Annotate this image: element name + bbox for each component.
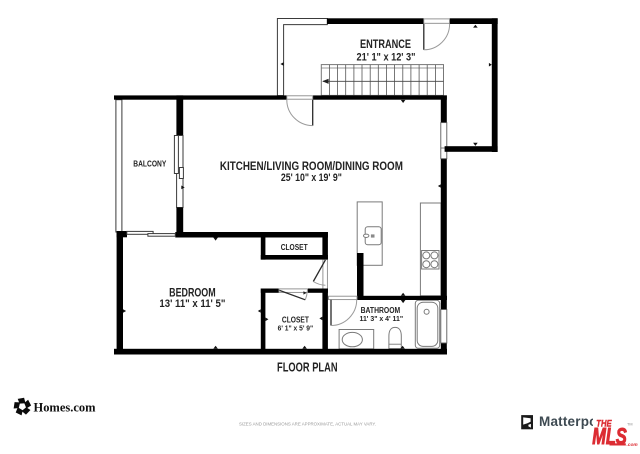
svg-text:FLOOR PLAN: FLOOR PLAN	[277, 359, 338, 374]
svg-text:Homes.com: Homes.com	[34, 400, 96, 415]
svg-text:SIZES AND DIMENSIONS ARE APPRO: SIZES AND DIMENSIONS ARE APPROXIMATE, AC…	[239, 421, 376, 426]
svg-text:13' 11" x 11' 5": 13' 11" x 11' 5"	[159, 298, 225, 310]
svg-text:11' 3" x 4' 11": 11' 3" x 4' 11"	[360, 314, 404, 323]
svg-text:6' 1" x 5' 9": 6' 1" x 5' 9"	[278, 323, 314, 332]
svg-text:TM: TM	[627, 423, 632, 427]
svg-text:BALCONY: BALCONY	[133, 158, 166, 168]
svg-text:21' 1" x 12' 3": 21' 1" x 12' 3"	[357, 52, 416, 64]
svg-text:KITCHEN/LIVING ROOM/DINING ROO: KITCHEN/LIVING ROOM/DINING ROOM	[220, 159, 403, 173]
svg-text:ENTRANCE: ENTRANCE	[360, 37, 411, 51]
svg-text:CLOSET: CLOSET	[281, 243, 308, 252]
svg-text:.com: .com	[627, 443, 639, 448]
svg-text:25' 10" x 19' 9": 25' 10" x 19' 9"	[281, 172, 342, 184]
